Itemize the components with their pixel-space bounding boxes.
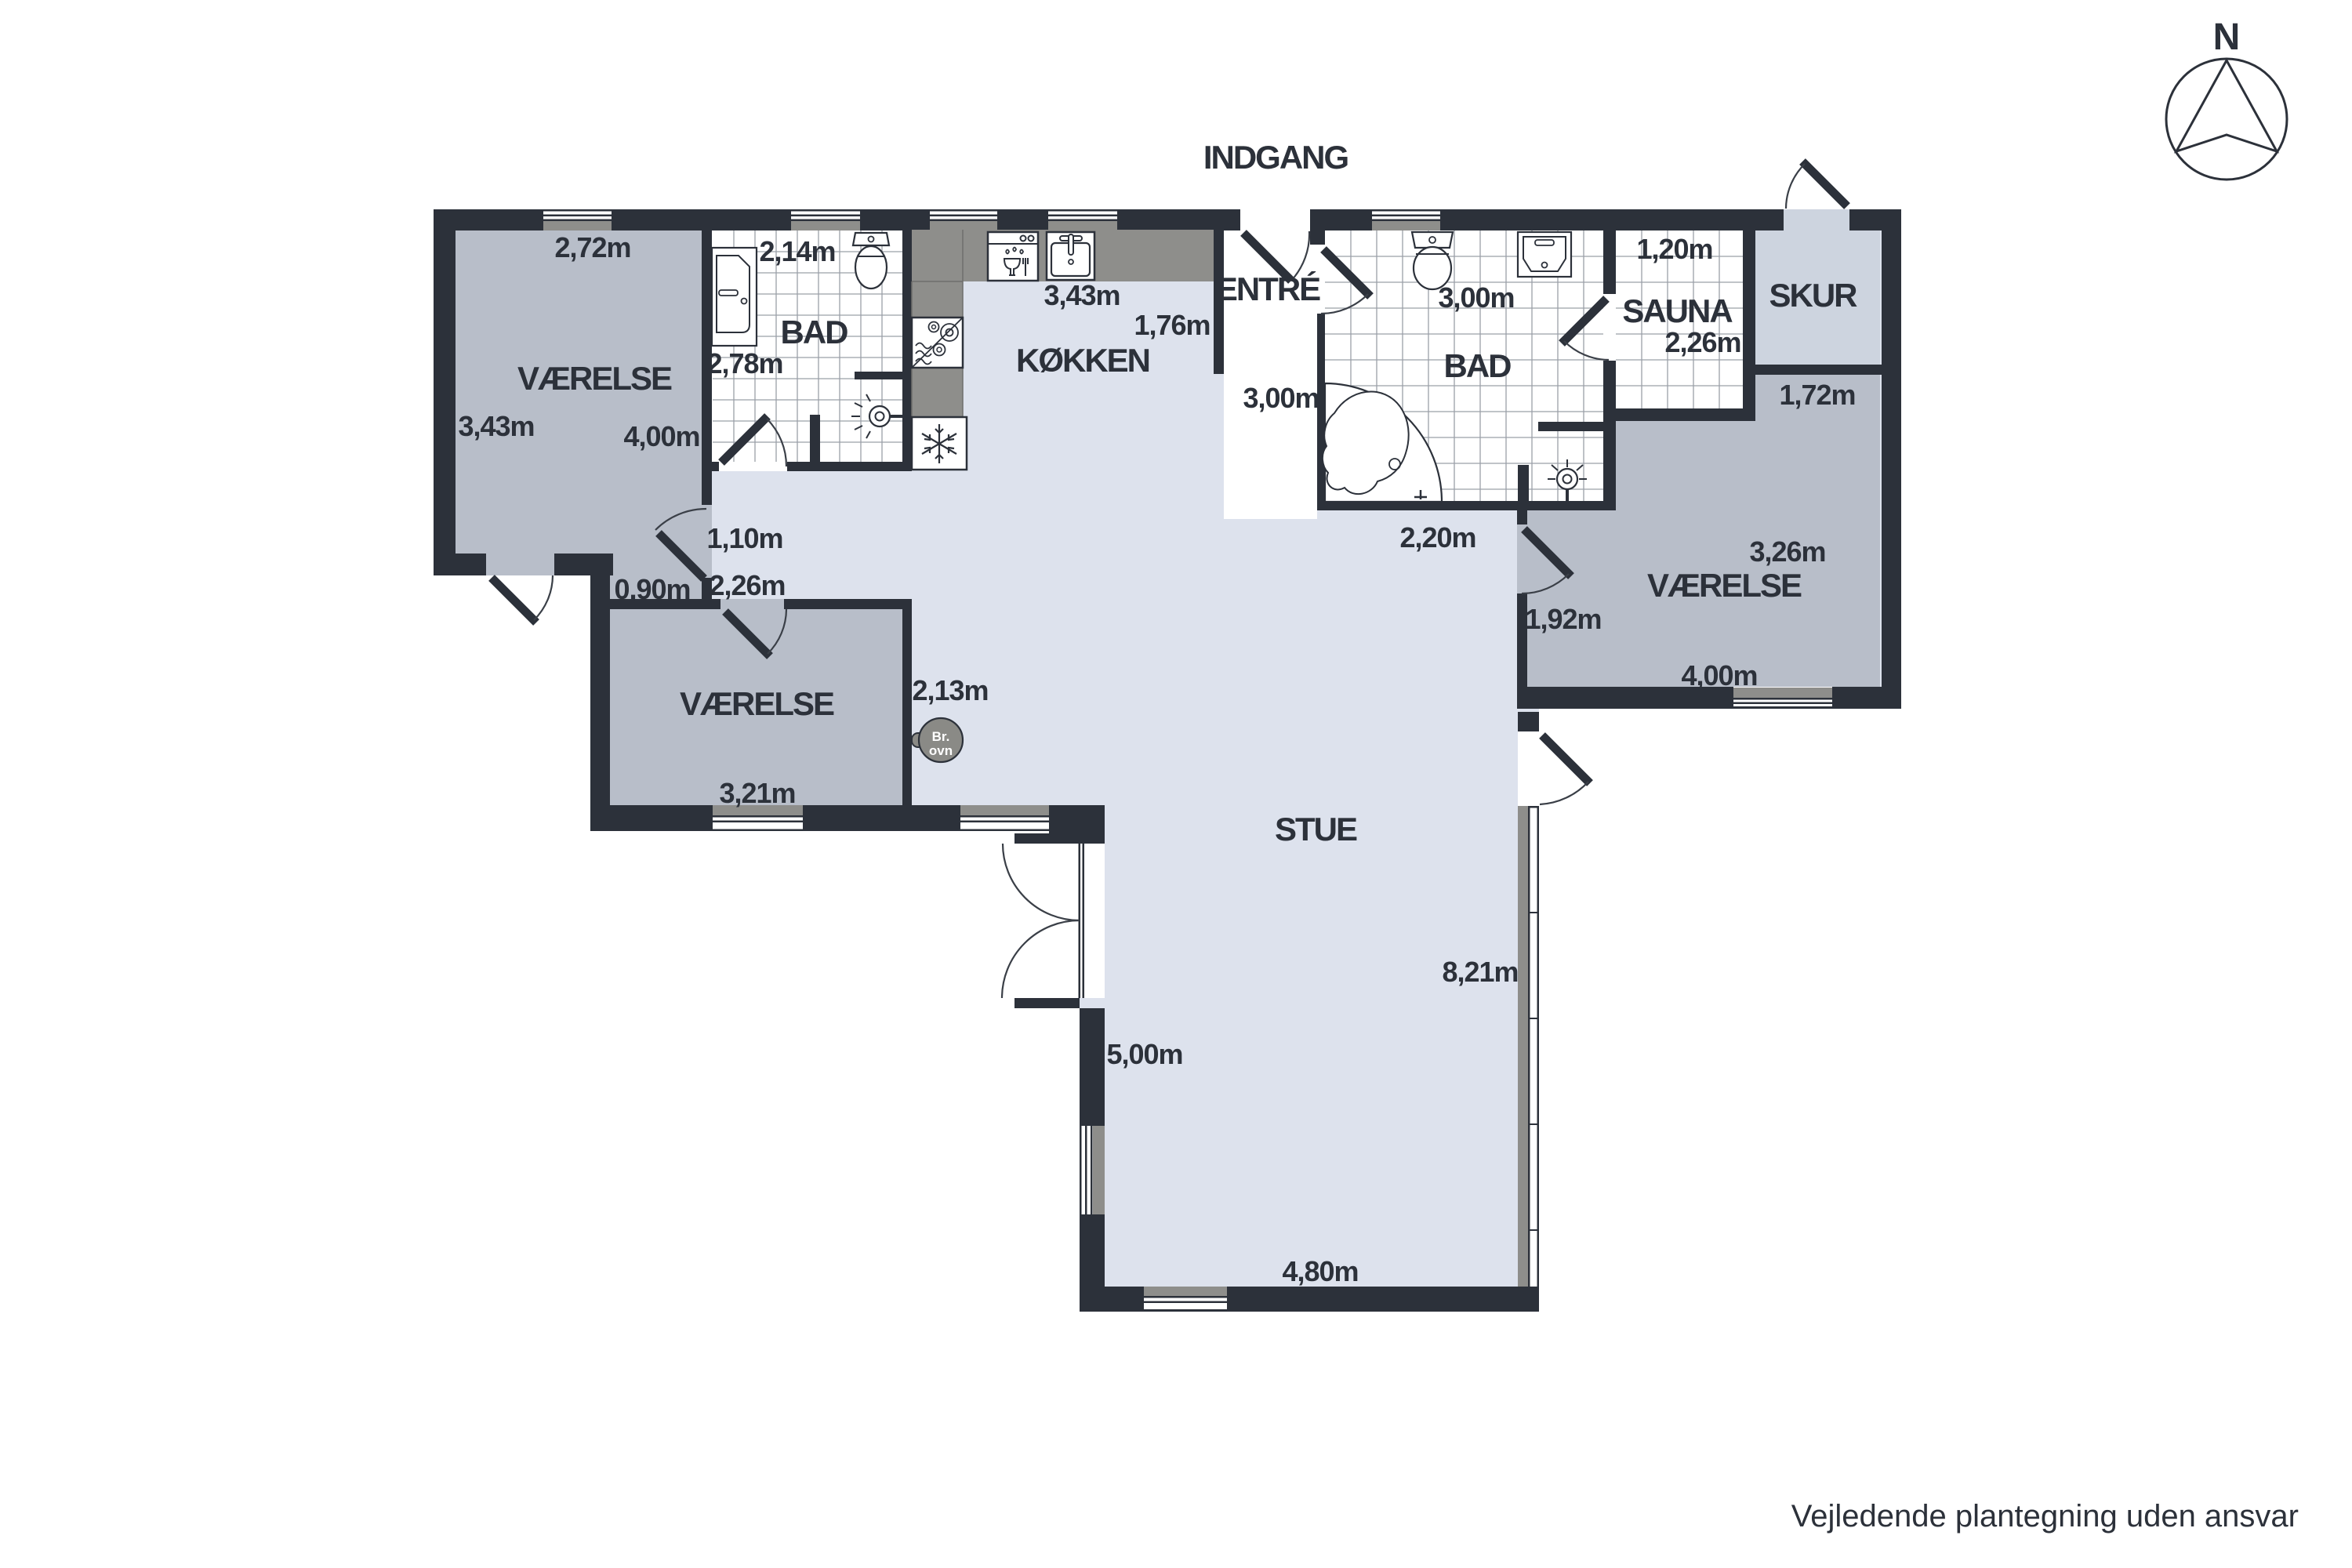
svg-text:2,72m: 2,72m [554, 231, 630, 263]
svg-text:VÆRELSE: VÆRELSE [517, 360, 672, 397]
svg-text:1,20m: 1,20m [1636, 233, 1712, 265]
svg-text:VÆRELSE: VÆRELSE [680, 685, 834, 722]
svg-text:2,78m: 2,78m [706, 347, 782, 379]
svg-text:5,00m: 5,00m [1106, 1038, 1182, 1070]
svg-text:SAUNA: SAUNA [1622, 292, 1733, 329]
svg-text:1,72m: 1,72m [1779, 379, 1855, 411]
svg-text:ENTRÉ: ENTRÉ [1216, 270, 1320, 307]
svg-text:SKUR: SKUR [1769, 277, 1857, 314]
svg-text:3,43m: 3,43m [458, 410, 534, 442]
svg-text:2,13m: 2,13m [912, 674, 988, 706]
svg-text:1,92m: 1,92m [1525, 603, 1601, 635]
svg-text:INDGANG: INDGANG [1203, 139, 1348, 176]
svg-text:3,00m: 3,00m [1243, 382, 1319, 414]
svg-text:BAD: BAD [781, 314, 848, 350]
svg-text:Vejledende plantegning uden an: Vejledende plantegning uden ansvar [1791, 1499, 2299, 1534]
svg-text:4,80m: 4,80m [1282, 1255, 1358, 1287]
svg-text:BAD: BAD [1444, 347, 1512, 384]
svg-text:Br.: Br. [932, 729, 950, 744]
svg-text:2,14m: 2,14m [759, 235, 835, 267]
svg-text:KØKKEN: KØKKEN [1016, 342, 1149, 379]
svg-text:ovn: ovn [929, 743, 953, 758]
svg-text:3,26m: 3,26m [1749, 535, 1825, 568]
svg-text:2,20m: 2,20m [1399, 521, 1475, 554]
svg-text:4,00m: 4,00m [1681, 659, 1757, 691]
svg-text:3,21m: 3,21m [719, 777, 795, 809]
svg-text:2,26m: 2,26m [1664, 326, 1740, 358]
svg-text:3,00m: 3,00m [1438, 281, 1514, 314]
svg-text:VÆRELSE: VÆRELSE [1647, 567, 1802, 604]
svg-text:STUE: STUE [1275, 811, 1357, 848]
svg-text:4,00m: 4,00m [623, 420, 699, 452]
svg-text:2,26m: 2,26m [709, 569, 785, 601]
svg-text:8,21m: 8,21m [1442, 956, 1518, 988]
svg-text:3,43m: 3,43m [1044, 279, 1120, 311]
svg-text:1,10m: 1,10m [706, 522, 782, 554]
svg-text:1,76m: 1,76m [1134, 309, 1210, 341]
svg-text:0,90m: 0,90m [614, 573, 690, 605]
svg-text:N: N [2213, 16, 2241, 58]
